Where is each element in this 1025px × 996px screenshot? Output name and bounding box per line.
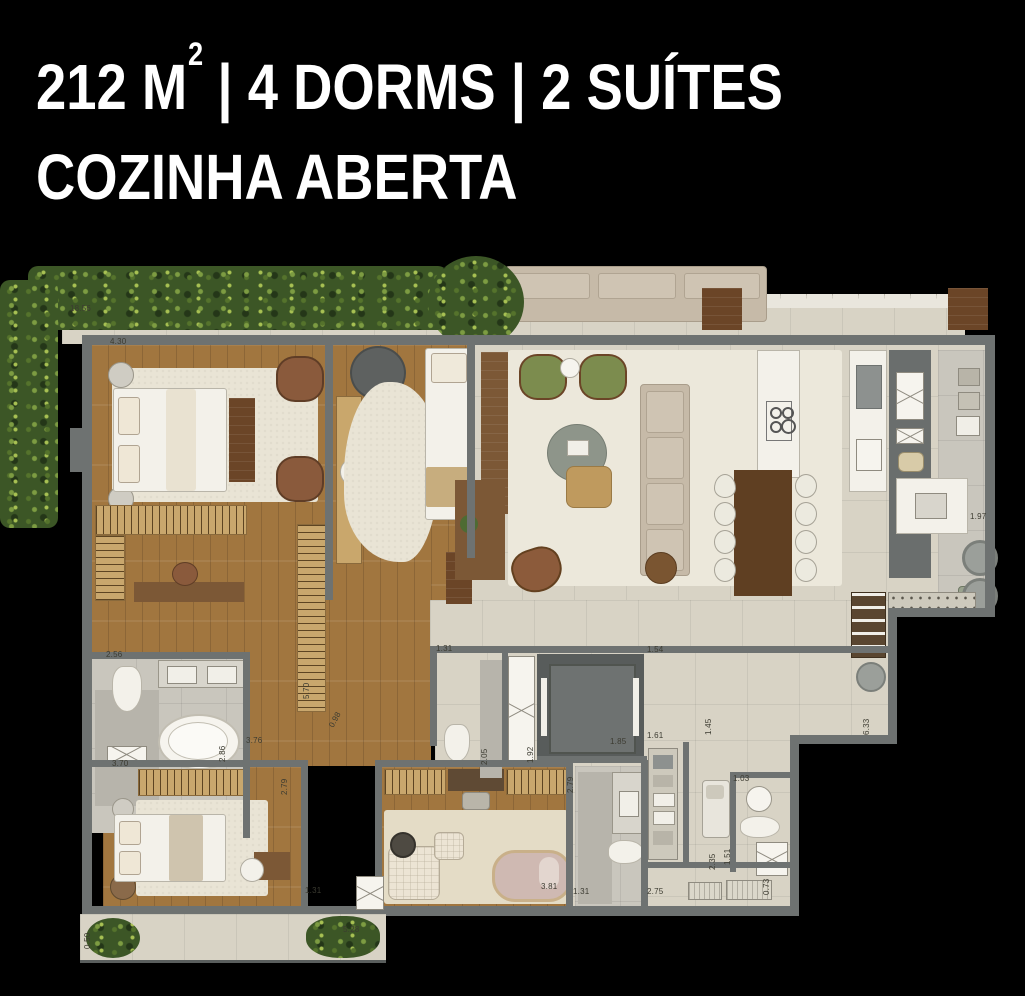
oven-column xyxy=(849,350,887,492)
armchair xyxy=(276,356,324,402)
dining-chair xyxy=(795,558,817,582)
master-bed xyxy=(113,388,227,492)
side-table-round xyxy=(390,832,416,858)
elevator-door xyxy=(541,678,547,736)
wall-bath2-right xyxy=(641,760,648,912)
toilet xyxy=(112,666,142,712)
desk-chair xyxy=(462,792,490,810)
wall-master-office xyxy=(325,340,333,600)
toilet xyxy=(608,840,644,864)
dining-chair xyxy=(795,474,817,498)
ac-grille xyxy=(688,882,722,900)
dining-chair xyxy=(795,502,817,526)
wall-lavabo-right xyxy=(502,650,508,762)
ottoman xyxy=(566,466,612,508)
balcony-bench xyxy=(356,876,384,910)
shelf-box xyxy=(958,392,980,410)
wall-left xyxy=(82,335,92,915)
bedroom4-wardrobe-right xyxy=(506,769,568,795)
planter-hedge-top xyxy=(28,266,448,330)
page-title-line1: 212 M2 | 4 DORMS | 2 SUÍTES xyxy=(36,50,783,124)
bin xyxy=(856,662,886,692)
closet-shelf-top xyxy=(95,505,247,535)
dining-table xyxy=(734,470,792,596)
terrace-side-table xyxy=(702,288,742,330)
floor-lamp xyxy=(560,358,580,378)
wall-step2 xyxy=(790,735,897,744)
wall-bath-top xyxy=(88,652,250,659)
double-vanity xyxy=(158,660,246,688)
pouf xyxy=(434,832,464,860)
nightstand xyxy=(108,362,134,388)
service-toilet xyxy=(740,816,780,838)
wall-step1 xyxy=(888,608,995,617)
wall-lavabo-left xyxy=(430,646,437,746)
living-sofa xyxy=(640,384,690,576)
green-armchair xyxy=(579,354,627,400)
wall-top xyxy=(82,335,994,345)
wall-right-upper xyxy=(985,335,995,617)
dining-chair xyxy=(714,558,736,582)
bedroom4-wardrobe-left xyxy=(384,769,446,795)
shelf-box xyxy=(956,416,980,436)
wall-bed3-top xyxy=(103,760,308,767)
lavabo-toilet xyxy=(444,724,470,762)
ac-grille xyxy=(726,880,772,900)
wall-maid-left xyxy=(683,742,689,867)
closet-wardrobe-long xyxy=(297,524,326,712)
bedroom3-wardrobe xyxy=(138,769,248,796)
shelf-box xyxy=(958,368,980,386)
bed-bench xyxy=(229,398,255,482)
suite2-vanity xyxy=(612,772,642,834)
kitchen-island xyxy=(757,350,800,478)
wall-right-lower xyxy=(790,735,799,915)
armchair xyxy=(276,456,324,502)
bedroom3-bed xyxy=(114,814,226,882)
page-title-line2: COZINHA ABERTA xyxy=(36,140,517,214)
squared-superscript: 2 xyxy=(188,36,203,72)
dining-chair xyxy=(714,502,736,526)
balcony-plant xyxy=(306,916,380,958)
wall-bath-right xyxy=(243,652,250,838)
dining-chair xyxy=(714,530,736,554)
green-armchair xyxy=(519,354,567,400)
wall-service-balcony xyxy=(648,862,795,868)
wall-bed4-right xyxy=(566,760,573,912)
vanity-chair xyxy=(172,562,198,586)
balcony-plant xyxy=(86,918,140,958)
suite2-shower xyxy=(578,772,612,904)
wall-left-jog xyxy=(70,428,84,472)
planter-hedge-left xyxy=(0,280,58,528)
hall-closet-door xyxy=(508,656,535,764)
wall-servicebath-top xyxy=(730,772,795,778)
desk-chair xyxy=(240,858,264,882)
fridge-column xyxy=(889,350,931,578)
terrace-side-table xyxy=(948,288,988,330)
daybed-lounger xyxy=(492,850,572,902)
service-sink xyxy=(746,786,772,812)
closet-shelf-left xyxy=(95,535,125,601)
wall-bed3-right xyxy=(301,760,308,912)
coffee-table-books xyxy=(567,440,589,456)
wall-right-mid xyxy=(888,608,897,744)
dining-chair xyxy=(714,474,736,498)
floor-plan-page: 212 M2 | 4 DORMS | 2 SUÍTES COZINHA ABER… xyxy=(0,0,1025,996)
laundry-counter xyxy=(896,478,968,534)
wall-office-living xyxy=(467,340,475,558)
wall-hall-bottom xyxy=(430,646,895,653)
wall-servicebath-left xyxy=(730,772,736,872)
maid-bed xyxy=(702,780,730,838)
elevator-shaft xyxy=(537,654,644,760)
elevator-door xyxy=(633,678,639,736)
service-shower xyxy=(756,842,788,876)
dining-chair xyxy=(795,530,817,554)
utility-shelf xyxy=(648,748,678,860)
side-table-round xyxy=(645,552,677,584)
wall-below-elevator xyxy=(537,756,647,763)
